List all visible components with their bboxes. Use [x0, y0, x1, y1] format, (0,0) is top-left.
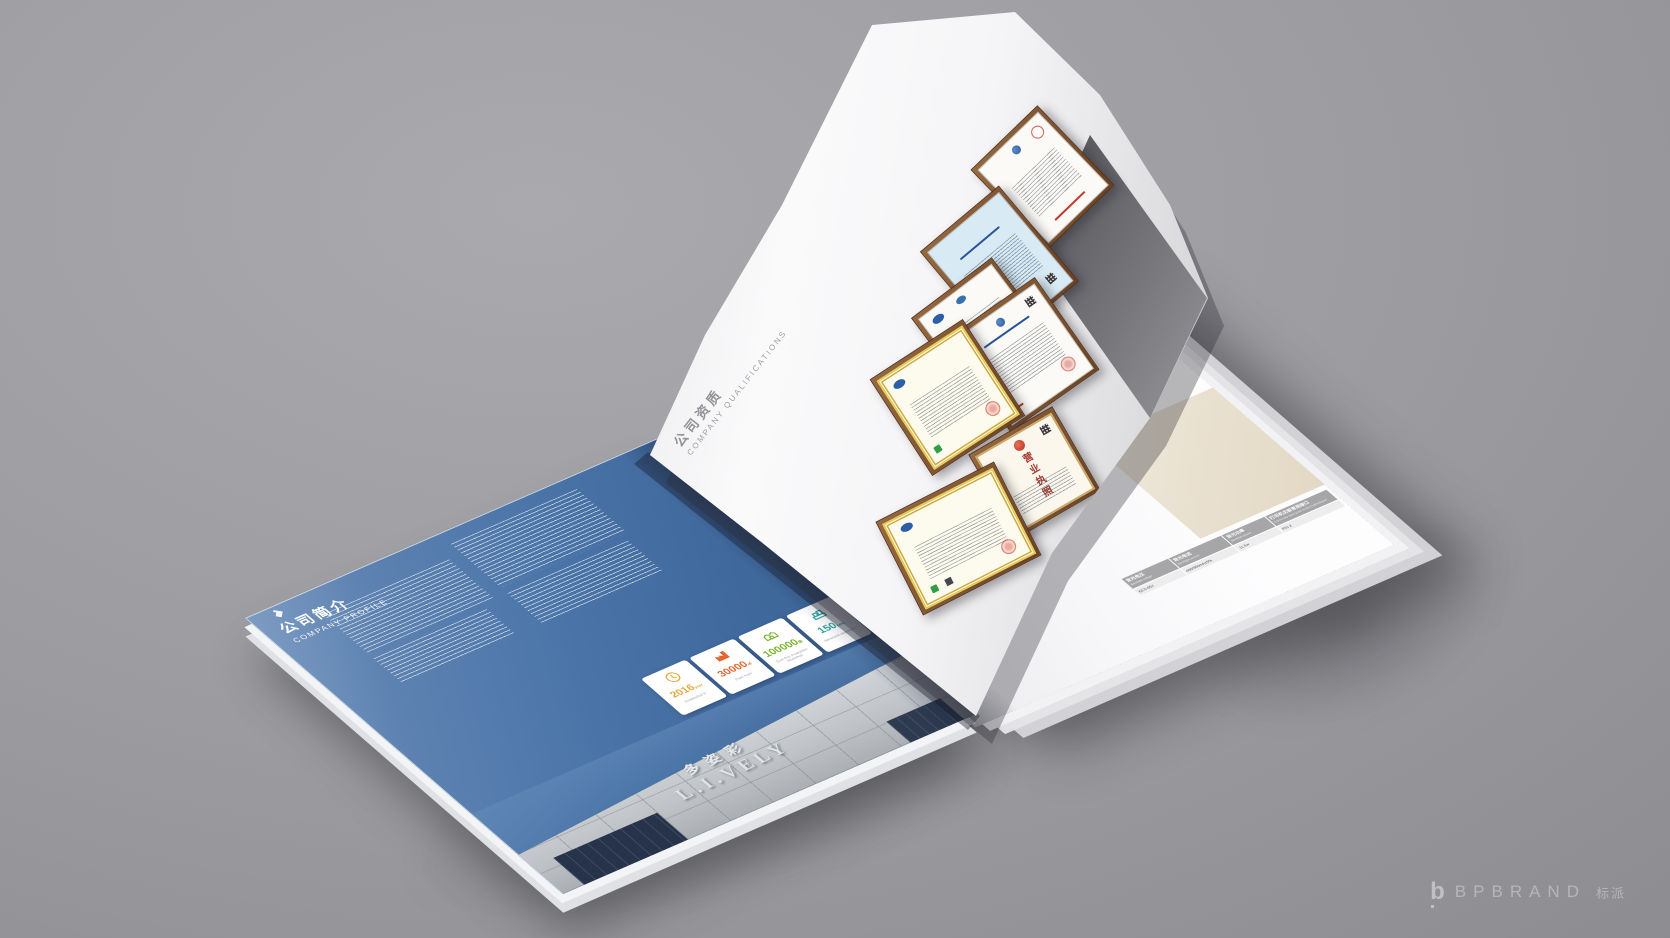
blue-oval-logo-icon	[954, 294, 967, 306]
emblem-icon	[994, 316, 1007, 329]
iaf-badge-icon	[945, 577, 954, 586]
iso-badge-icon	[934, 444, 944, 454]
red-seal-icon	[1028, 123, 1046, 141]
company-qualifications-heading: 公司资质 COMPANY QUALIFICATIONS	[668, 288, 809, 457]
blue-oval-logo-icon	[892, 377, 907, 391]
certificate-text-lines	[1012, 147, 1082, 217]
section-title-cn: 公司资质	[668, 288, 801, 450]
watermark: b BPBRAND 标派	[1430, 880, 1626, 904]
certificate-text-lines	[1013, 466, 1076, 515]
bpbrand-logo-icon: b	[1430, 880, 1445, 904]
watermark-brand-cn: 标派	[1596, 883, 1626, 902]
qr-code-icon	[1045, 272, 1058, 285]
national-emblem-icon	[1012, 438, 1027, 453]
watermark-brand: BPBRAND	[1455, 882, 1586, 902]
certificate-text-lines	[910, 366, 991, 439]
qr-code-icon	[1024, 295, 1037, 308]
brand-mark-icon	[272, 610, 282, 617]
stat-suffix: year	[693, 683, 704, 690]
iso-badge-icon	[930, 584, 939, 593]
blue-oval-logo-icon	[899, 521, 914, 534]
brochure-mockup-scene: 背光电压 Backlight voltage 背光电流 Backlight cu…	[0, 0, 1670, 938]
blue-oval-logo-icon	[931, 312, 946, 326]
section-title-en: COMPANY QUALIFICATIONS	[685, 302, 809, 457]
qr-code-icon	[1039, 424, 1051, 436]
certificate-text-lines	[914, 507, 1008, 579]
emblem-icon	[1009, 143, 1022, 156]
